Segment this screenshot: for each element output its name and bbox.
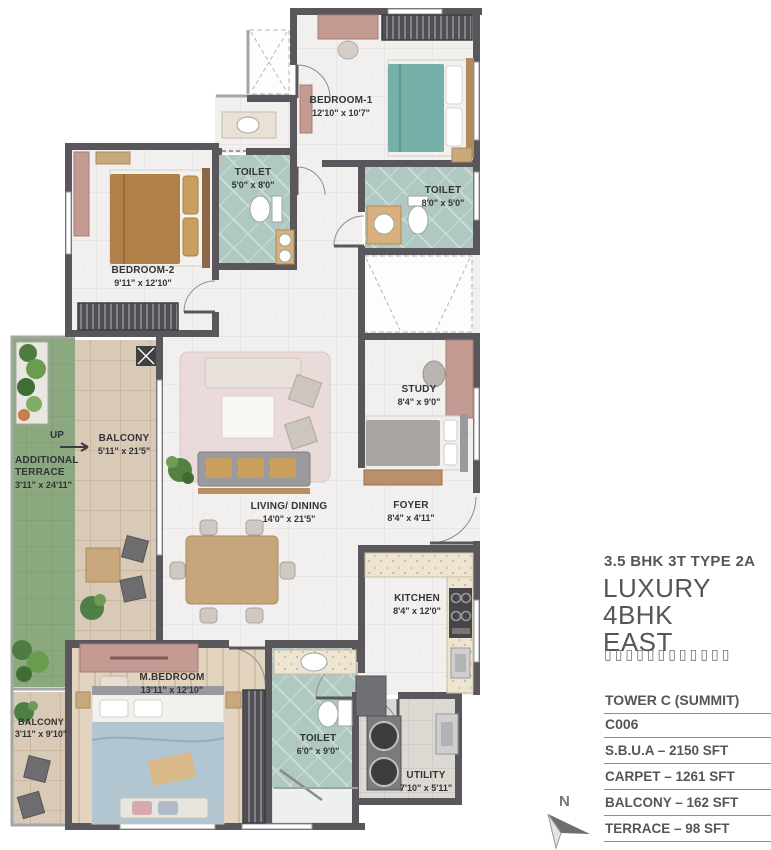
unit-type-label: 3.5 BHK 3T TYPE 2A (604, 553, 755, 570)
tower-name: TOWER C (SUMMIT) (604, 690, 771, 714)
spec-row-sbua: S.B.U.A – 2150 SFT (604, 738, 771, 764)
wardrobe-m-bedroom (243, 690, 265, 823)
toilet-tank (272, 196, 282, 222)
wash-basin (279, 250, 291, 262)
toilet-bowl (250, 196, 270, 222)
plant (28, 701, 38, 711)
stove (449, 588, 472, 638)
desk (446, 340, 473, 418)
dresser (300, 85, 312, 133)
sink-basin (455, 654, 466, 672)
chair (24, 756, 51, 783)
study-bed (366, 414, 468, 472)
bench (96, 152, 130, 164)
spec-table: TOWER C (SUMMIT) C006 S.B.U.A – 2150 SFT… (604, 690, 771, 842)
floorplan-page: BEDROOM-112'10" x 10'7" TOILET5'0" x 8'0… (0, 0, 771, 850)
chair (423, 361, 445, 387)
spec-row-terrace: TERRACE – 98 SFT (604, 816, 771, 842)
title-line-1: LUXURY 4BHK (603, 575, 771, 629)
wash-basin (374, 214, 394, 234)
unit-number: C006 (604, 714, 771, 738)
compass-north-label: N (559, 793, 570, 810)
console (364, 470, 442, 485)
bed-teal (388, 58, 474, 158)
nightstand (452, 148, 472, 162)
toilet-bowl (318, 701, 338, 727)
spec-row-carpet: CARPET – 1261 SFT (604, 764, 771, 790)
passage-vanity (222, 112, 276, 138)
nightstand (76, 692, 90, 708)
chair (338, 41, 358, 59)
compass-arrow (548, 814, 590, 848)
shower-area (272, 788, 358, 823)
chair (120, 576, 146, 602)
coffee-table (222, 396, 274, 438)
table (86, 548, 120, 582)
toilet-tank (408, 196, 428, 206)
kannada-text-placeholder: ▯▯▯▯▯▯▯▯▯▯▯▯ (604, 646, 732, 663)
wardrobe-bedroom-1 (382, 15, 472, 40)
toilet-bowl (408, 206, 428, 234)
counter-top (365, 553, 473, 577)
wash-basin (301, 653, 327, 671)
foot-bench (120, 798, 208, 818)
page-title: LUXURY 4BHK EAST (603, 575, 771, 656)
wardrobe-strip (74, 152, 89, 236)
fridge (356, 676, 386, 716)
wardrobe-bedroom-2 (78, 303, 178, 330)
up-label: UP (50, 430, 64, 441)
sofa-top (205, 358, 301, 388)
bed-brown (110, 168, 210, 268)
nightstand (226, 692, 241, 708)
desk (318, 15, 378, 39)
wash-basin (279, 234, 291, 246)
toilet-tank (338, 700, 352, 726)
spec-row-balcony: BALCONY – 162 SFT (604, 790, 771, 816)
